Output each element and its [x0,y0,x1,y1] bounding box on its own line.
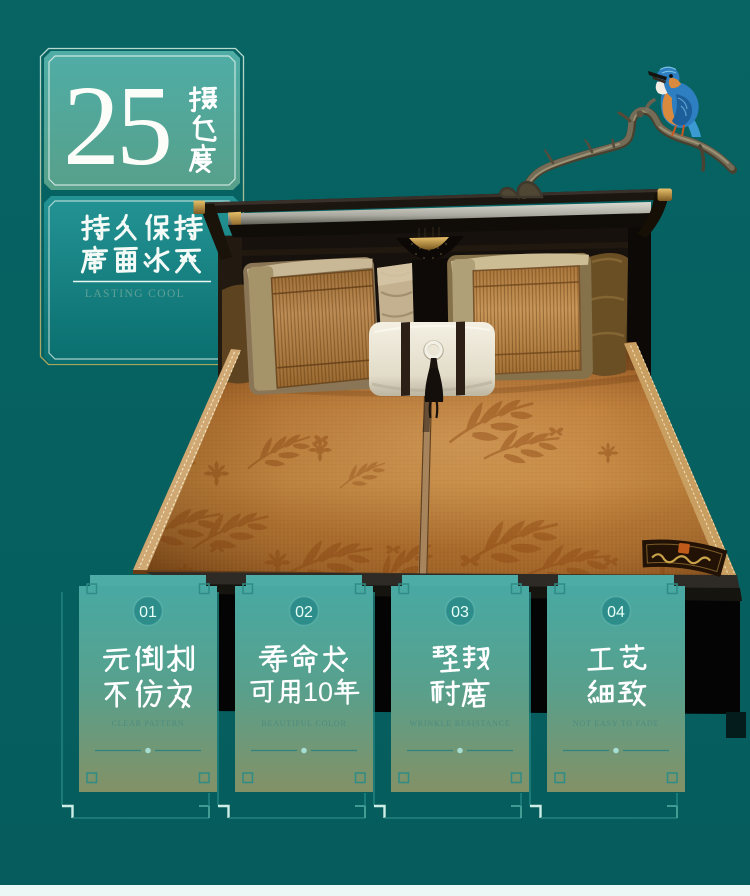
svg-text:CLEAR PATTERN: CLEAR PATTERN [111,719,184,728]
svg-text:03: 03 [451,604,469,621]
svg-text:01: 01 [139,604,157,621]
svg-text:BEAUTIFUL COLOR: BEAUTIFUL COLOR [261,719,346,728]
svg-text:04: 04 [607,604,625,621]
svg-text:25: 25 [63,62,173,189]
svg-text:LASTING COOL: LASTING COOL [85,288,185,300]
svg-text:NOT EASY TO FADE: NOT EASY TO FADE [573,719,659,728]
svg-text:WRINKLE RESISTANCE: WRINKLE RESISTANCE [409,719,510,728]
svg-text:10: 10 [303,677,333,707]
svg-text:02: 02 [295,604,313,621]
